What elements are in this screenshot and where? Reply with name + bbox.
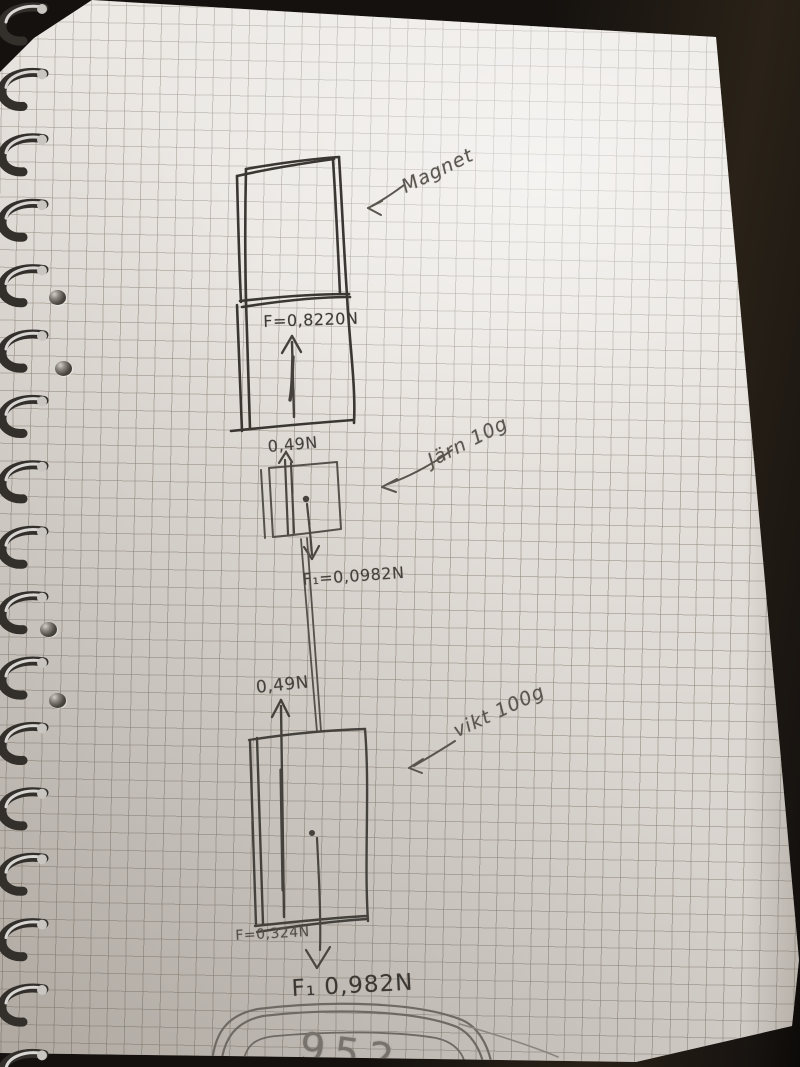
weight-pointer-arrow <box>409 741 455 773</box>
magnet-force-label: F=0,8220N <box>263 309 359 331</box>
weight-center-dot <box>309 830 315 836</box>
magnet-up-arrow <box>282 336 301 417</box>
spiral-coil <box>2 462 47 499</box>
notebook-photo: Magnet F=0,8220N 0,49N Järn 10g F₁=0,098… <box>0 0 800 1067</box>
spiral-coil <box>2 396 47 433</box>
iron-up-arrow <box>279 452 294 534</box>
spiral-coil <box>2 985 47 1022</box>
spiral-coil <box>2 200 47 237</box>
iron-center-dot <box>303 496 309 502</box>
spiral-coil <box>2 1050 47 1067</box>
spiral-coil <box>2 69 47 106</box>
spiral-coil <box>2 789 47 826</box>
string-line <box>301 538 321 732</box>
spiral-coil <box>2 527 47 564</box>
spiral-coil <box>2 723 47 760</box>
spiral-coil <box>2 593 47 630</box>
spiral-coil <box>2 854 47 891</box>
weight-up-arrow <box>272 700 289 917</box>
iron-box-sketch <box>261 462 341 538</box>
spiral-coil <box>2 920 47 957</box>
spiral-coil <box>2 4 47 41</box>
spiral-coil <box>2 266 47 303</box>
weight-down-arrow <box>306 838 330 968</box>
magnet-pointer-arrow <box>368 185 404 215</box>
spiral-coil <box>2 331 47 368</box>
notebook-page: Magnet F=0,8220N 0,49N Järn 10g F₁=0,098… <box>0 0 800 1067</box>
pencil-drawing <box>0 0 800 1067</box>
weight-box-sketch <box>249 729 368 932</box>
spiral-coil <box>2 135 47 172</box>
spiral-coil <box>2 658 47 695</box>
spiral-binding <box>0 0 70 1067</box>
